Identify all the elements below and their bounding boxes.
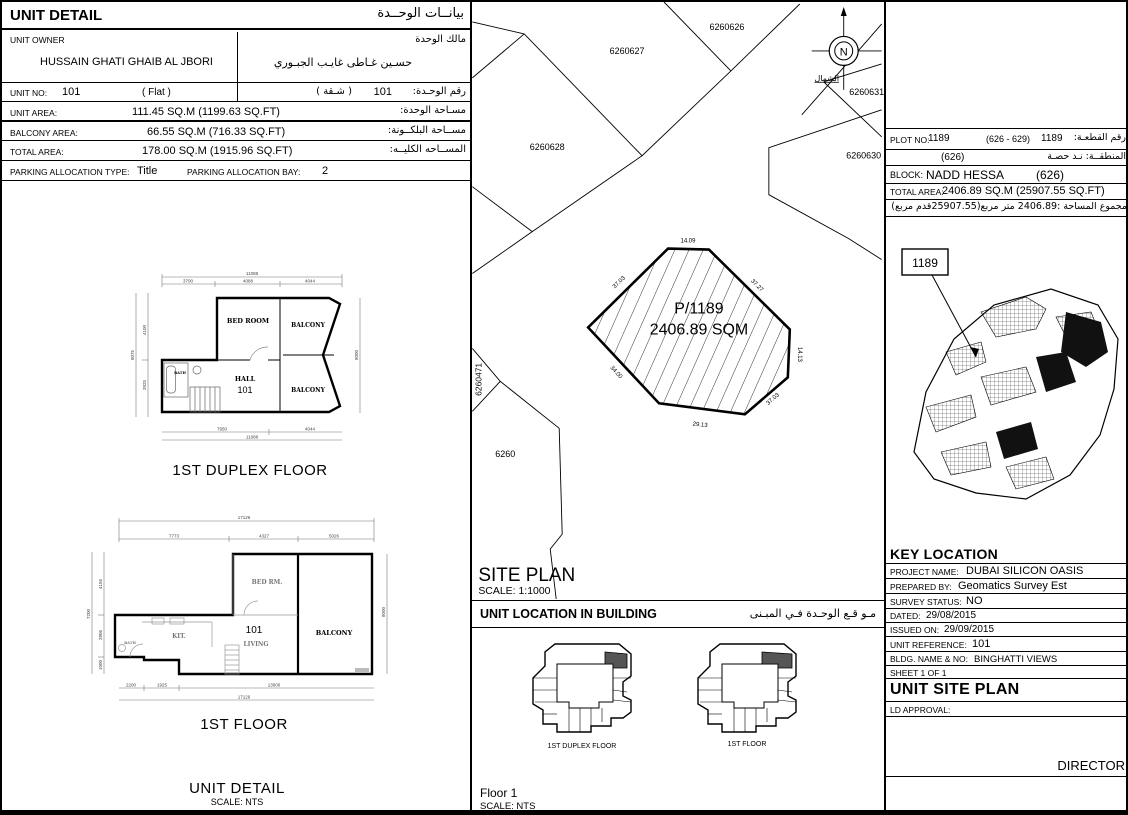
dated-value: 29/08/2015 (926, 610, 976, 621)
parcel-6260627: 6260627 (610, 46, 645, 56)
unit-location-title-ar: مـو قـع الوحـدة فـي المبـنى (750, 607, 876, 620)
bldg-name-label: BLDG. NAME & NO: (890, 654, 968, 664)
survey-status-row: SURVEY STATUS: NO (886, 594, 1128, 609)
plot-total-area-label: TOTAL AREA: (890, 187, 944, 197)
first-dim-right: 8000 (381, 606, 386, 617)
duplex-dim-right: 8000 (354, 349, 359, 360)
footprint-duplex-caption: 1ST DUPLEX FLOOR (548, 743, 617, 750)
north-letter: N (840, 46, 848, 58)
first-living-label: LIVING (243, 641, 268, 648)
plot-total-area-ar-row: مجموع المساحة :2406.89 متر مربع(25907.55… (886, 200, 1128, 217)
footprint-first (698, 644, 796, 732)
parcel-6260471: 6260471 (473, 363, 483, 396)
duplex-dim-top-1: 3700 (183, 279, 194, 284)
director-box: DIRECTOR (886, 717, 1128, 777)
duplex-balcony-bottom-label: BALCONY (291, 387, 325, 394)
block-label: BLOCK: (890, 170, 923, 180)
district-row: (626) المنطقــة: نـد حصـة (886, 150, 1128, 166)
unit-area-label: UNIT AREA: (10, 108, 57, 118)
sheet-label: SHEET 1 OF 1 (890, 668, 947, 678)
duplex-dim-bottom-2: 4044 (305, 427, 316, 432)
key-location-map: 1189 (886, 217, 1128, 545)
doc-type: UNIT SITE PLAN (890, 681, 1020, 699)
duplex-unit-number: 101 (237, 385, 252, 395)
unit-detail-header: UNIT DETAIL بيانــات الوحــدة (2, 2, 472, 30)
parking-type-label: PARKING ALLOCATION TYPE: (10, 167, 130, 177)
unit-reference-label: UNIT REFERENCE: (890, 640, 967, 650)
floor-scale: SCALE: NTS (480, 801, 535, 812)
duplex-bedroom-label: BED ROOM (227, 317, 269, 325)
duplex-bath-label: BATH (174, 371, 186, 375)
plot-no-value-2: 1189 (1041, 133, 1063, 144)
floor-label: Floor 1 (480, 786, 517, 800)
unit-no-row: UNIT NO: 101 ( Flat ) رقم الوحـدة: 101 (… (2, 83, 472, 102)
first-dim-left-total: 7200 (86, 608, 91, 619)
first-bedroom-label: BED RM. (252, 579, 283, 586)
owner-label-en: UNIT OWNER (10, 35, 65, 45)
duplex-floor-plan: 11088 3700 4088 4044 8075 4100 3925 8000… (102, 255, 392, 487)
left-footer-title: UNIT DETAIL (2, 780, 472, 797)
middle-panel: 6260626 6260627 6260628 6260630 6260631 … (472, 2, 884, 813)
plot-name: P/1189 (674, 300, 724, 317)
duplex-dim-top-3: 4044 (305, 279, 316, 284)
issued-on-row: ISSUED ON: 29/09/2015 (886, 623, 1128, 637)
dated-label: DATED: (890, 611, 921, 621)
dated-row: DATED: 29/08/2015 (886, 609, 1128, 623)
owner-name-ar: حسـين غـاطى غايـب الجبـوري (274, 56, 412, 69)
total-area-label: TOTAL AREA: (10, 147, 64, 157)
duplex-fixtures (164, 363, 220, 412)
site-plan-scale: SCALE: 1:1000 (478, 586, 550, 597)
prepared-by-label: PREPARED BY: (890, 582, 952, 592)
project-name-row: PROJECT NAME: DUBAI SILICON OASIS (886, 564, 1128, 579)
first-unit-number: 101 (246, 625, 263, 636)
edge-right: 14.13 (796, 347, 802, 363)
footprint-first-caption: 1ST FLOOR (728, 741, 767, 748)
unit-no-value: 101 (62, 86, 80, 98)
duplex-caption: 1ST DUPLEX FLOOR (172, 462, 327, 479)
duplex-dim-top-total: 11088 (246, 271, 259, 276)
first-outline (115, 554, 372, 674)
site-plan-drawing: 6260626 6260627 6260628 6260630 6260631 … (472, 2, 884, 601)
unit-detail-title-ar: بيانــات الوحــدة (377, 6, 464, 21)
total-area-row: TOTAL AREA: 178.00 SQ.M (1915.96 SQ.FT) … (2, 142, 472, 161)
bldg-name-row: BLDG. NAME & NO: BINGHATTI VIEWS (886, 652, 1128, 666)
project-name-label: PROJECT NAME: (890, 567, 959, 577)
duplex-dim-top-2: 4088 (243, 279, 254, 284)
first-dim-bottom-total: 17126 (238, 695, 251, 700)
parcel-6260626: 6260626 (709, 22, 744, 32)
district-label-ar: المنطقــة: نـد حصـة (1047, 151, 1126, 162)
unit-site-plan-sheet: UNIT DETAIL بيانــات الوحــدة UNIT OWNER… (0, 0, 1128, 815)
key-location-title-row: KEY LOCATION (886, 545, 1128, 564)
parking-row: PARKING ALLOCATION TYPE: Title PARKING A… (2, 161, 472, 181)
duplex-walls (217, 298, 334, 412)
first-dim-left-1: 4156 (98, 578, 103, 589)
prepared-by-value: Geomatics Survey Est (958, 580, 1067, 592)
balcony-area-row: BALCONY AREA: 66.55 SQ.M (716.33 SQ.FT) … (2, 123, 472, 141)
first-dim-bottom-1: 2200 (126, 683, 137, 688)
bldg-name-value: BINGHATTI VIEWS (974, 654, 1057, 665)
first-dim-bottom-2: 1925 (157, 683, 168, 688)
balcony-area-label-ar: مســاحة البلكــونة: (388, 125, 466, 136)
first-kitchen-label: KIT. (172, 633, 186, 640)
plot-no-value: 1189 (928, 133, 950, 144)
unit-reference-value: 101 (972, 638, 990, 650)
director-label: DIRECTOR (1057, 758, 1125, 773)
block-row: BLOCK: NADD HESSA (626) (886, 166, 1128, 184)
district-no: (626) (941, 152, 964, 163)
parking-bay-value: 2 (322, 165, 328, 177)
parcel-6260: 6260 (495, 449, 515, 459)
north-compass-icon: N الشمال (812, 7, 882, 90)
block-name: NADD HESSA (926, 168, 1004, 182)
project-name-value: DUBAI SILICON OASIS (966, 565, 1083, 577)
unit-location-header: UNIT LOCATION IN BUILDING مـو قـع الوحـد… (472, 602, 884, 628)
unit-area-value: 111.45 SQ.M (1199.63 SQ.FT) (132, 106, 280, 118)
edge-bottom: 29.13 (692, 422, 708, 430)
unit-area-label-ar: مسـاحة الوحدة: (400, 105, 466, 116)
right-panel: PLOT NO: 1189 (626 - 629) 1189 رقم القطع… (884, 2, 1128, 813)
first-floor-plan: 17126 7773 4327 5026 7200 4156 2806 1000… (82, 502, 412, 742)
first-dim-top-1: 7773 (169, 534, 180, 539)
unit-type-en: ( Flat ) (142, 87, 171, 98)
first-caption: 1ST FLOOR (200, 716, 288, 733)
edge-top: 14.09 (681, 239, 697, 245)
plot-total-area-row: TOTAL AREA: 2406.89 SQ.M (25907.55 SQ.FT… (886, 184, 1128, 200)
block-no: (626) (1036, 168, 1064, 182)
parcel-6260628: 6260628 (530, 142, 565, 152)
survey-status-label: SURVEY STATUS: (890, 597, 962, 607)
parcel-6260630: 6260630 (846, 151, 881, 161)
survey-status-value: NO (966, 595, 983, 607)
parking-type-value: Title (137, 165, 157, 177)
duplex-balcony-top-label: BALCONY (291, 322, 325, 329)
duplex-dim-left-total: 8075 (130, 349, 135, 360)
plot-total-area-ar: مجموع المساحة :2406.89 متر مربع(25907.55… (891, 201, 1127, 212)
north-label-ar: الشمال (814, 74, 839, 83)
first-dim-top-total: 17126 (238, 515, 251, 520)
doc-type-row: UNIT SITE PLAN (886, 679, 1128, 702)
unit-type-ar: ( شـقة ) (316, 86, 352, 97)
duplex-dim-bottom-1: 7950 (217, 427, 228, 432)
plot-area: 2406.89 SQM (650, 321, 749, 338)
left-panel: UNIT DETAIL بيانــات الوحــدة UNIT OWNER… (2, 2, 472, 813)
prepared-by-row: PREPARED BY: Geomatics Survey Est (886, 579, 1128, 594)
balcony-area-value: 66.55 SQ.M (716.33 SQ.FT) (147, 126, 285, 138)
left-footer: UNIT DETAIL SCALE: NTS (2, 780, 472, 807)
site-plan-title: SITE PLAN (478, 565, 575, 586)
unit-area-row: UNIT AREA: 111.45 SQ.M (1199.63 SQ.FT) م… (2, 102, 472, 122)
unit-no-label-ar: رقم الوحـدة: (413, 86, 466, 97)
first-dim-lines (92, 518, 387, 700)
duplex-dim-bottom-total: 11088 (246, 435, 259, 440)
building-footprints: 1ST DUPLEX FLOOR 1ST FLOOR (502, 638, 862, 763)
unit-no-value-ar: 101 (374, 86, 392, 98)
footprint-duplex (533, 644, 631, 732)
owner-name-en: HUSSAIN GHATI GHAIB AL JBORI (40, 56, 213, 68)
parking-bay-label: PARKING ALLOCATION BAY: (187, 167, 300, 177)
plot-no-row: PLOT NO: 1189 (626 - 629) 1189 رقم القطع… (886, 129, 1128, 150)
first-balcony-label: BALCONY (316, 629, 353, 637)
unit-detail-title-en: UNIT DETAIL (10, 7, 102, 24)
first-dim-top-3: 5026 (329, 534, 340, 539)
edge-bottom-left: 34.00 (609, 365, 624, 381)
first-dim-bottom-3: 13000 (268, 683, 281, 688)
unit-location-title-en: UNIT LOCATION IN BUILDING (480, 607, 657, 621)
right-bottom-empty-box (886, 777, 1128, 813)
duplex-dim-left-1: 4100 (142, 324, 147, 335)
map-plot-callout-label: 1189 (912, 256, 938, 270)
duplex-dim-left-2: 3925 (142, 379, 147, 390)
owner-label-ar: مالك الوحدة (415, 34, 466, 45)
issued-on-value: 29/09/2015 (944, 624, 994, 635)
title-block-empty-box (886, 2, 1128, 129)
first-dim-left-3: 1000 (98, 659, 103, 670)
balcony-area-label: BALCONY AREA: (10, 128, 78, 138)
duplex-hall-label: HALL (235, 375, 256, 383)
plot-range: (626 - 629) (986, 134, 1030, 144)
ld-approval-row: LD APPROVAL: (886, 702, 1128, 717)
issued-on-label: ISSUED ON: (890, 625, 939, 635)
total-area-value: 178.00 SQ.M (1915.96 SQ.FT) (142, 145, 292, 157)
plot-no-label-ar: رقم القطعـة: (1074, 132, 1126, 143)
left-footer-scale: SCALE: NTS (2, 797, 472, 807)
unit-reference-row: UNIT REFERENCE: 101 (886, 637, 1128, 652)
key-location-title: KEY LOCATION (890, 546, 998, 562)
plot-no-label: PLOT NO: (890, 135, 930, 145)
plot-total-area-value: 2406.89 SQ.M (25907.55 SQ.FT) (942, 185, 1105, 197)
sheet-row: SHEET 1 OF 1 (886, 666, 1128, 679)
first-dim-left-2: 2806 (98, 629, 103, 640)
edge-top-left: 37.03 (612, 275, 627, 290)
first-bath-label: BATH (124, 641, 136, 645)
unit-no-label-en: UNIT NO: (10, 88, 47, 98)
parcel-6260631: 6260631 (849, 87, 884, 97)
total-area-label-ar: المســاحه الكليــه: (390, 144, 466, 155)
ld-approval-label: LD APPROVAL: (890, 705, 950, 715)
first-dim-top-2: 4327 (259, 534, 270, 539)
